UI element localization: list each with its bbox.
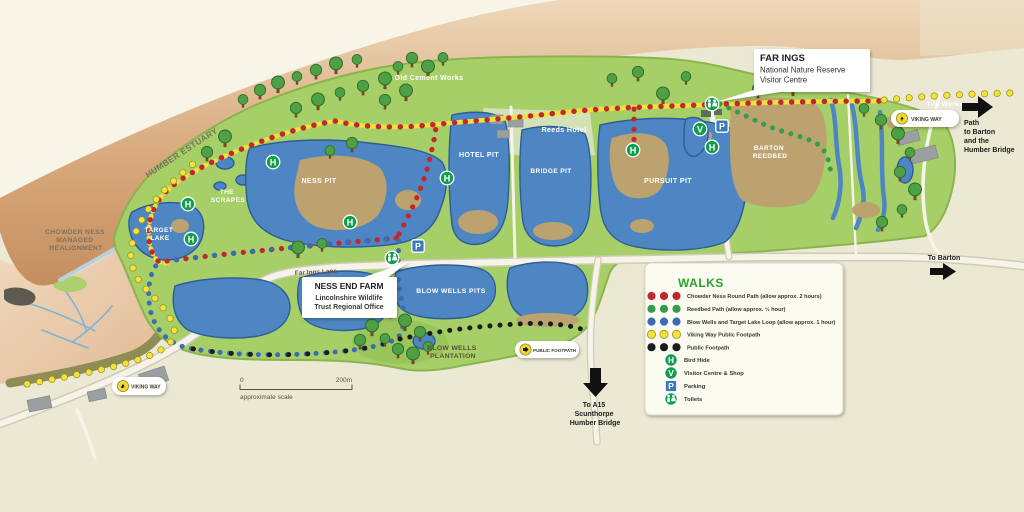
legend-route-dot (647, 292, 655, 300)
legend-route-dot (647, 318, 655, 326)
svg-text:VIKING WAY: VIKING WAY (911, 117, 942, 123)
legend-symbol-label: Visitor Centre & Shop (684, 371, 744, 377)
bird-hide-marker: H (184, 232, 198, 246)
legend-route-label: Chowder Ness Round Path (allow approx. 2… (687, 294, 822, 300)
west-lake-1 (173, 278, 290, 338)
to-barton-label: To Barton (928, 255, 961, 262)
viking-way-badge-sw: VIKING WAY (112, 377, 166, 395)
band-fade (920, 0, 1024, 56)
far-ings-callout-title: FAR INGS (760, 53, 805, 64)
legend-symbol-label: Parking (684, 384, 706, 390)
svg-text:P: P (719, 121, 725, 131)
legend-title: WALKS (678, 276, 724, 290)
bird-hide-marker: H (665, 354, 678, 367)
svg-text:H: H (188, 234, 195, 244)
barton-reedbed-label: BARTON REEDBED (753, 145, 788, 160)
scale-end: 200m (336, 377, 352, 384)
bird-hide-marker: H (343, 215, 357, 229)
svg-text:National Nature Reserve: National Nature Reserve (760, 66, 845, 75)
legend-symbol-label: Toilets (684, 397, 702, 403)
visitor-centre-building (701, 110, 711, 117)
svg-text:Visitor Centre: Visitor Centre (760, 76, 807, 85)
svg-text:H: H (709, 142, 716, 152)
legend-route-dot (647, 343, 655, 351)
svg-text:PUBLIC FOOTPATH: PUBLIC FOOTPATH (533, 348, 577, 353)
blow-wells-pits-label: BLOW WELLS PITS (416, 288, 485, 295)
toilets-marker (705, 97, 719, 111)
scale-start: 0 (240, 377, 244, 384)
bird-hide-marker: H (440, 171, 454, 185)
parking-marker: P (716, 120, 728, 132)
svg-text:H: H (630, 145, 637, 155)
legend-route-dot (672, 305, 680, 313)
hotel-pit-label: HOTEL PIT (459, 152, 499, 159)
ness-pit-label: NESS PIT (301, 178, 336, 185)
bird-hide-marker: H (705, 140, 719, 154)
legend-route-dot (672, 292, 680, 300)
tile-works-label: Tile Works (927, 101, 964, 108)
bird-hide-marker: H (626, 143, 640, 157)
svg-text:H: H (347, 217, 354, 227)
svg-text:V: V (697, 124, 703, 134)
viking-way-badge-ne: VIKING WAY (891, 110, 959, 127)
svg-text:Lincolnshire Wildlife: Lincolnshire Wildlife (315, 295, 382, 302)
legend-route-dot (660, 318, 668, 326)
svg-text:H: H (444, 173, 451, 183)
blow-wells-plantation-label: BLOW WELLS PLANTATION (427, 345, 479, 360)
parking-marker: P (412, 240, 424, 252)
legend-route-dot (672, 318, 680, 326)
legend-route-label: Reedbed Path (allow approx. ½ hour) (687, 306, 786, 313)
bird-hide-marker: H (266, 155, 280, 169)
legend-symbol-label: Bird Hide (684, 358, 711, 364)
toilets-marker (665, 393, 678, 406)
toilets-marker (385, 251, 399, 265)
svg-text:H: H (185, 199, 192, 209)
svg-text:Trust Regional Office: Trust Regional Office (314, 304, 383, 311)
legend-route-dot (647, 330, 655, 338)
public-footpath-badge: PUBLIC FOOTPATH (515, 341, 579, 358)
visitor-centre-marker: V (665, 367, 678, 380)
svg-text:P: P (668, 381, 674, 391)
pursuit-pit-label: PURSUIT PIT (644, 178, 692, 185)
legend-route-dot (660, 292, 668, 300)
svg-text:H: H (668, 355, 674, 365)
legend-route-dot (647, 305, 655, 313)
svg-text:P: P (415, 241, 421, 251)
svg-text:H: H (270, 157, 277, 167)
parking-marker: P (665, 380, 677, 392)
bridge-pit-label: BRIDGE PIT (530, 168, 571, 175)
legend-route-dot (660, 305, 668, 313)
legend-route-dot (660, 343, 668, 351)
far-ings-map: VPHHHHHHHP HUMBER ESTUARY CHOWDER NESS M… (0, 0, 1024, 512)
old-cement-works-label: Old Cement Works (395, 75, 464, 82)
scale-caption: approximate scale (240, 394, 293, 401)
reeds-hotel-label: Reeds Hotel (542, 127, 587, 134)
legend-route-label: Blow Wells and Target Lake Loop (allow a… (687, 320, 835, 326)
bird-hide-marker: H (181, 197, 195, 211)
svg-text:V: V (668, 368, 674, 378)
legend-route-label: Viking Way Public Footpath (687, 333, 761, 339)
legend-route-dot (672, 343, 680, 351)
visitor-centre-marker: V (693, 122, 707, 136)
legend-route-dot (672, 330, 680, 338)
legend-route-dot (660, 330, 668, 338)
svg-text:VIKING WAY: VIKING WAY (131, 385, 161, 391)
legend-route-label: Public Footpath (687, 345, 730, 351)
ness-end-farm-callout-title: NESS END FARM (315, 281, 384, 291)
map-canvas: VPHHHHHHHP HUMBER ESTUARY CHOWDER NESS M… (0, 0, 1024, 512)
